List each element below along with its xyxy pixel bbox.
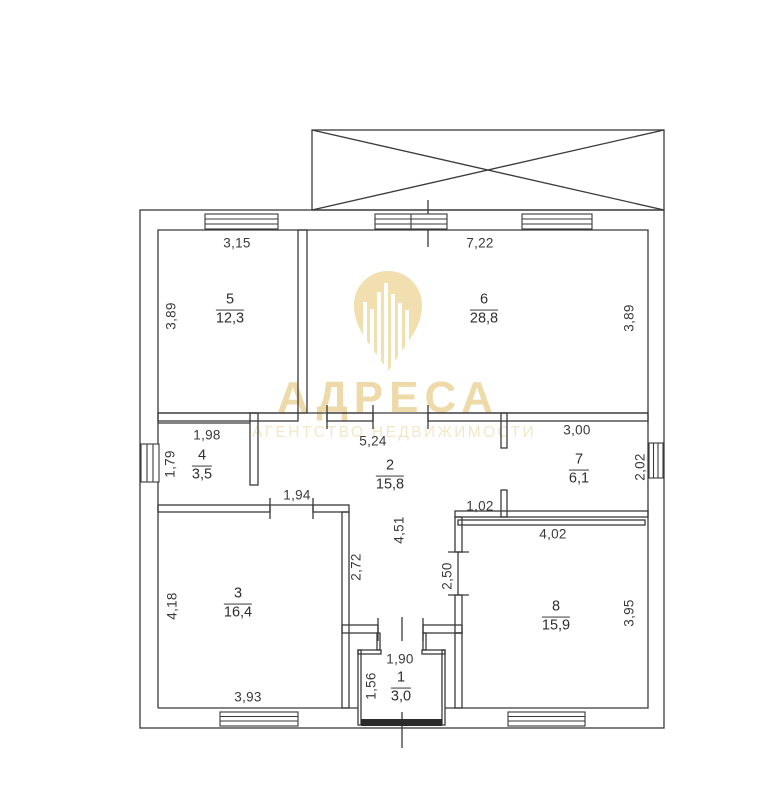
room-1-number: 1: [391, 671, 411, 689]
room-8-area: 15,9: [542, 618, 570, 635]
room-1-label: 1 3,0: [391, 671, 411, 706]
window-room5-top: [205, 214, 278, 229]
room-6-area: 28,8: [470, 311, 498, 328]
room-4-height-dim: 1,79: [163, 450, 178, 477]
room-7-height-dim: 2,02: [633, 453, 648, 480]
room-1-area: 3,0: [391, 689, 411, 706]
room-5-width-dim: 3,15: [223, 236, 250, 251]
window-room4-left: [141, 444, 159, 482]
room-8-number: 8: [542, 600, 570, 618]
room-8-width-dim: 4,02: [539, 527, 566, 542]
room-2-number: 2: [376, 459, 404, 477]
room-5-number: 5: [216, 293, 244, 311]
room-3-label: 3 16,4: [224, 587, 252, 622]
room-2-leftbottom-dim: 1,94: [283, 488, 310, 503]
room-2-label: 2 15,8: [376, 459, 404, 494]
room-5-area: 12,3: [216, 311, 244, 328]
room-1-width-dim: 1,90: [386, 652, 413, 667]
room-8-height-dim: 3,95: [622, 599, 637, 626]
room-4-label: 4 3,5: [192, 449, 212, 484]
window-room8-bottom: [508, 712, 585, 726]
room-4-number: 4: [192, 449, 212, 467]
room-5-height-dim: 3,89: [164, 302, 179, 329]
room-5-label: 5 12,3: [216, 293, 244, 328]
room-3-area: 16,4: [224, 605, 252, 622]
hall-lowerleft-dim: 2,72: [349, 553, 364, 580]
entrance-door-threshold: [361, 719, 442, 726]
room-2-width-dim: 5,24: [359, 434, 386, 449]
terrace-outline: [312, 130, 664, 210]
room-2-area: 15,8: [376, 477, 404, 494]
room-7-width-dim: 3,00: [563, 423, 590, 438]
room-7-number: 7: [569, 453, 589, 471]
room-3-number: 3: [224, 587, 252, 605]
room-3-width-dim: 3,93: [234, 690, 261, 705]
room-6-number: 6: [470, 293, 498, 311]
floor-plan-page: АДРЕСА АГЕНТСТВО НЕДВИЖИМОСТИ: [0, 0, 783, 800]
hall-lowerright-dim: 2,50: [440, 562, 455, 589]
room-6-height-dim: 3,89: [622, 304, 637, 331]
watermark-brand-text: АДРЕСА: [277, 373, 499, 422]
window-room6-terrace-door: [375, 214, 447, 229]
hall-height-dim: 4,51: [392, 516, 407, 543]
room-6-width-dim: 7,22: [466, 236, 493, 251]
room-7-area: 6,1: [569, 471, 589, 488]
window-room7-right: [649, 443, 663, 478]
room-7-label: 7 6,1: [569, 453, 589, 488]
watermark-subtitle-text: АГЕНТСТВО НЕДВИЖИМОСТИ: [252, 424, 536, 441]
room-4-area: 3,5: [192, 467, 212, 484]
room-8-label: 8 15,9: [542, 600, 570, 635]
room-1-height-dim: 1,56: [364, 672, 379, 699]
room-3-height-dim: 4,18: [165, 592, 180, 619]
room-4-width-dim: 1,98: [193, 428, 220, 443]
room-6-label: 6 28,8: [470, 293, 498, 328]
window-room3-bottom: [220, 712, 298, 726]
room-2-notch-dim: 1,02: [466, 499, 493, 514]
window-room6-top: [522, 214, 592, 229]
